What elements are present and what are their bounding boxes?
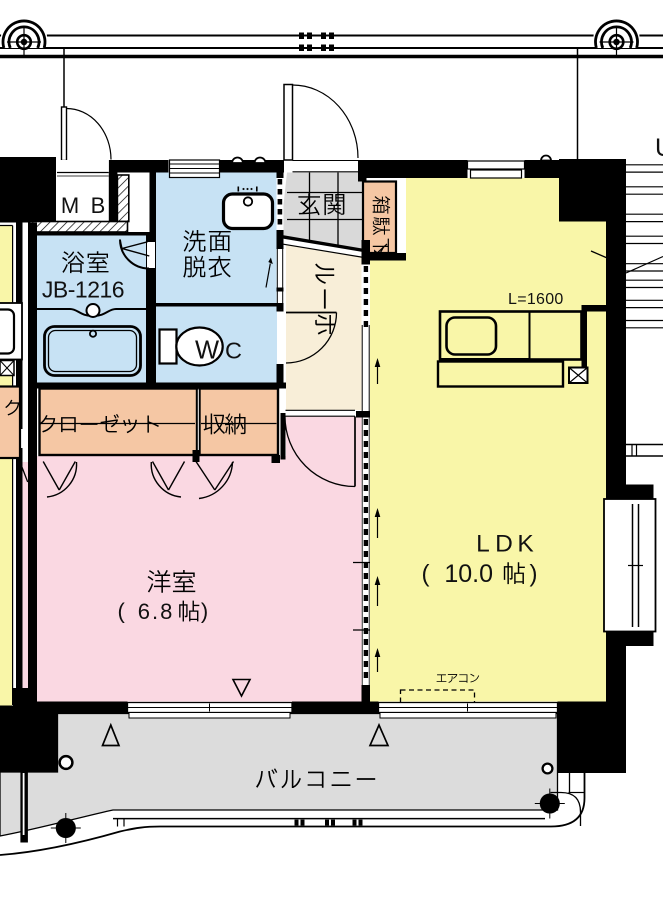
svg-text:): ) [530,561,538,588]
svg-text:(: ( [422,561,430,588]
svg-text:6.8: 6.8 [138,599,175,624]
svg-text:10.0: 10.0 [444,560,493,588]
svg-text:U: U [655,134,663,162]
svg-text:M: M [61,193,79,218]
svg-text:L=1600: L=1600 [508,291,564,308]
svg-text:W: W [195,337,219,365]
svg-text:K: K [517,531,534,558]
svg-text:): ) [201,599,208,624]
svg-text:C: C [225,338,242,364]
svg-text:(: ( [118,599,126,624]
svg-text:L: L [476,531,490,558]
svg-text:B: B [91,193,106,218]
svg-text:D: D [495,531,513,558]
svg-text:JB-1216: JB-1216 [42,277,124,303]
